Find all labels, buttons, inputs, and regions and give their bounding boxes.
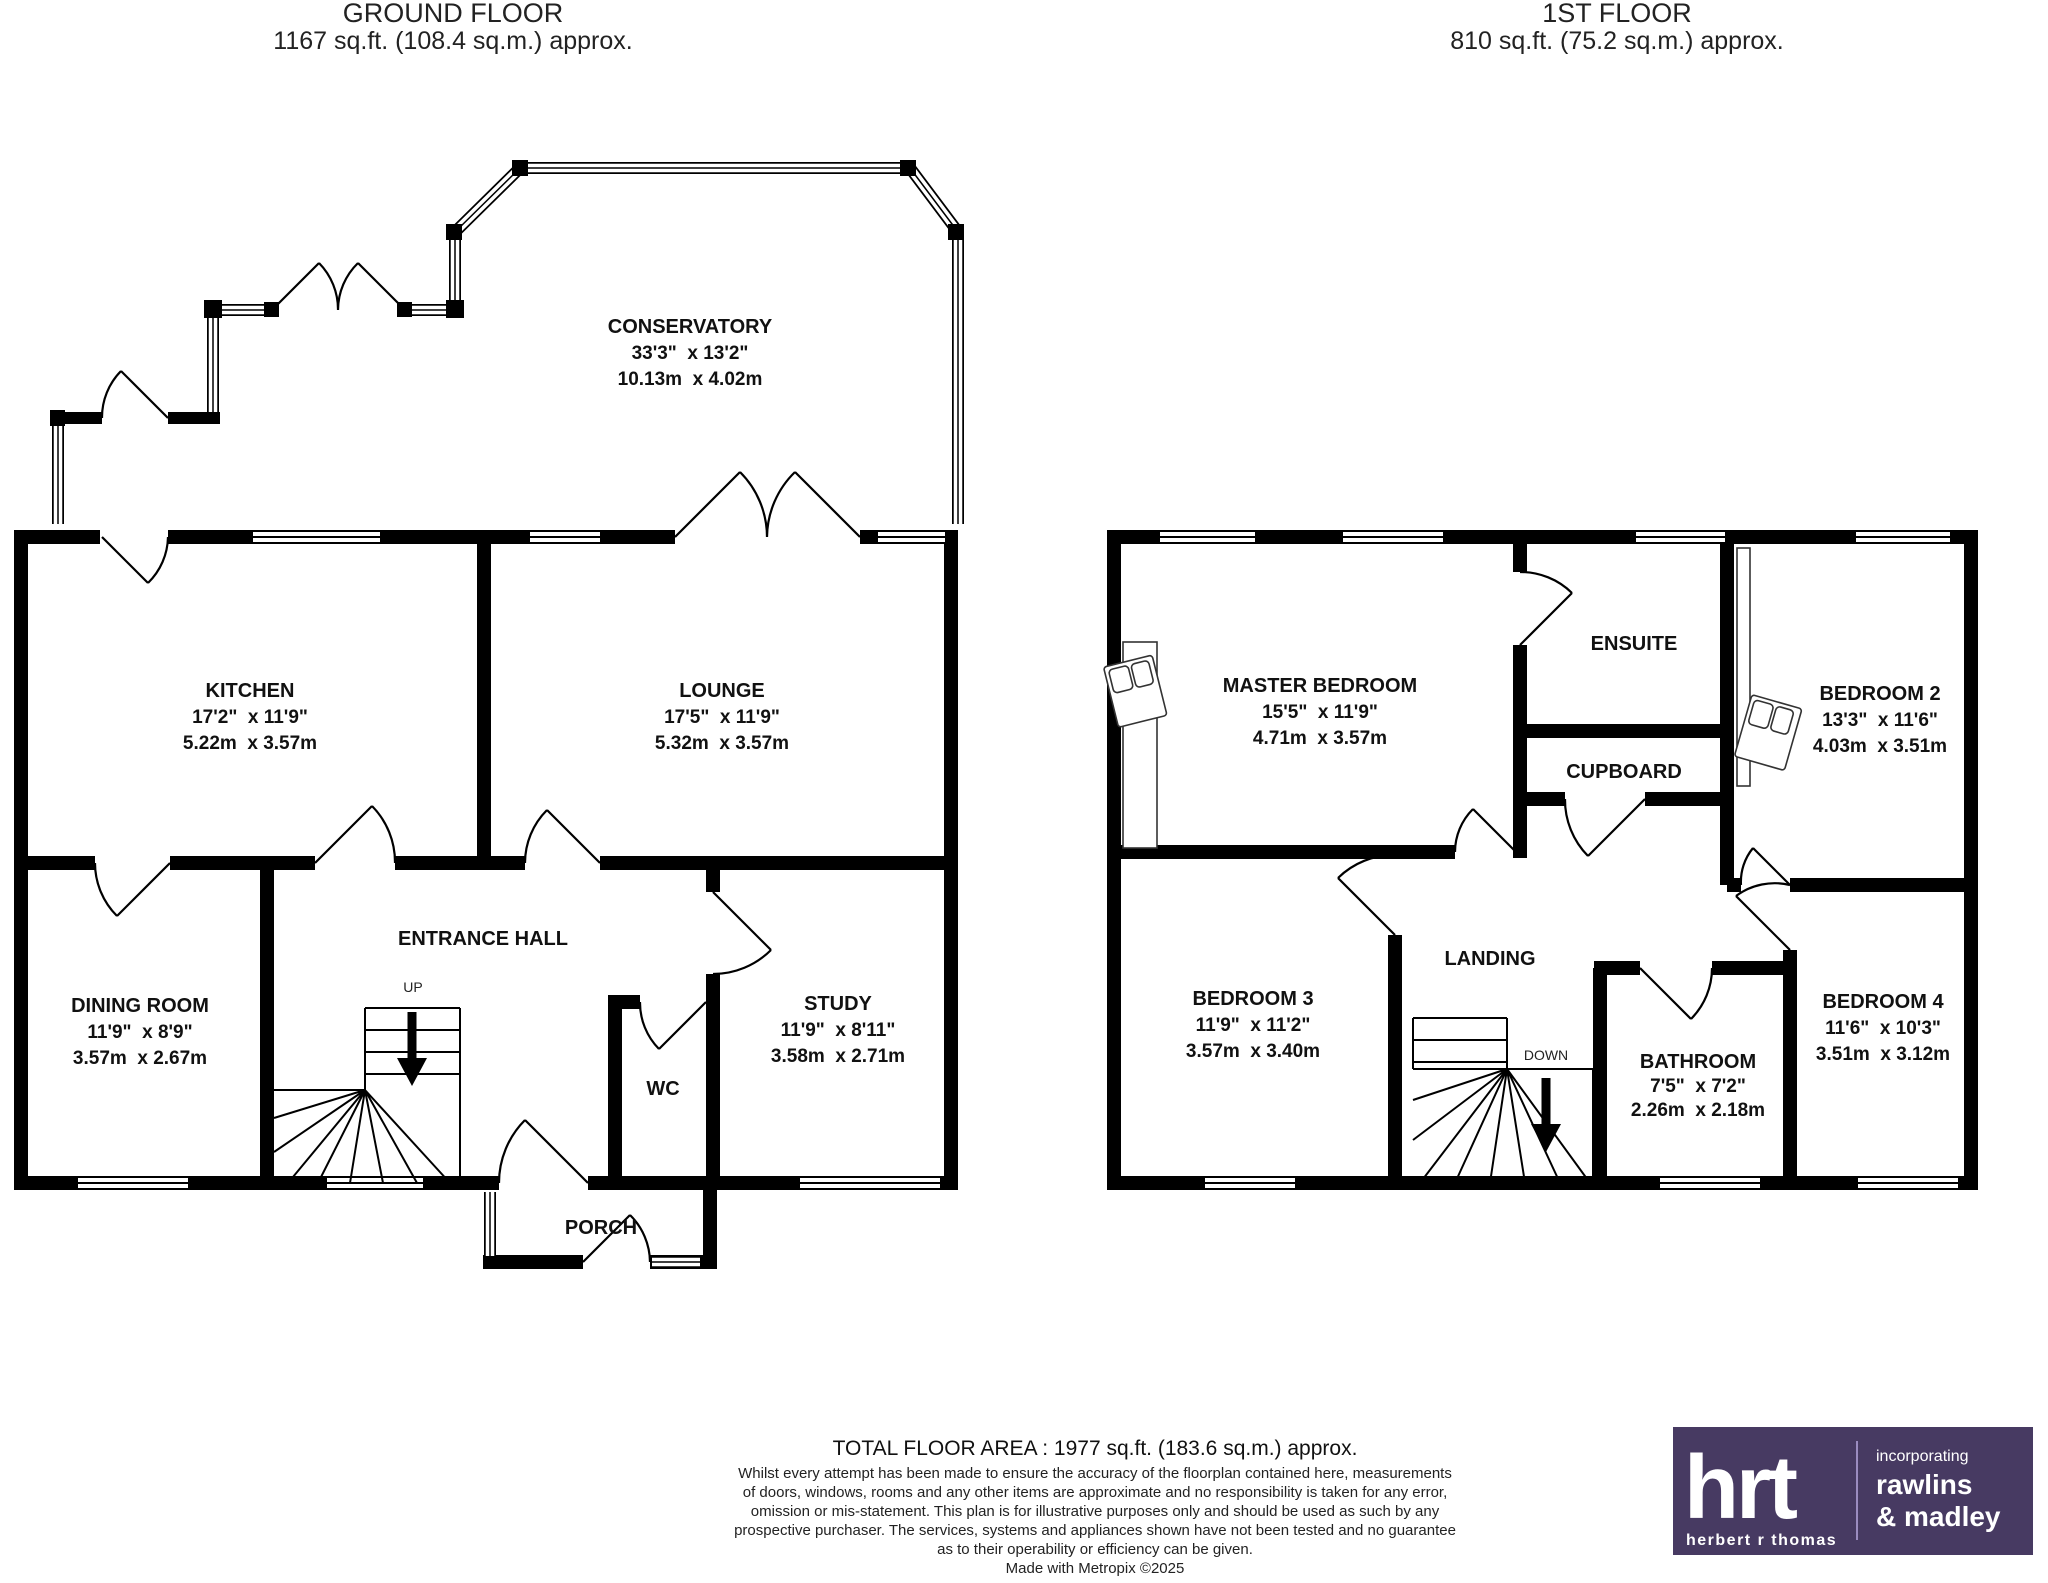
room-dims-metric: 10.13m x 4.02m [618, 369, 763, 390]
room-dims-imperial: 7'5" x 7'2" [1650, 1076, 1746, 1097]
room-label-conservatory: CONSERVATORY [608, 316, 773, 338]
room-dims-imperial: 15'5" x 11'9" [1262, 702, 1378, 723]
up-arrow-head [397, 1058, 427, 1086]
glazing-post [948, 224, 964, 240]
ground-windows [78, 537, 945, 1262]
first-floor-plan: DOWN MASTER BEDROOM 15'5" x 11'9" 4.71m … [1104, 530, 1978, 1190]
total-floor-area: TOTAL FLOOR AREA : 1977 sq.ft. (183.6 sq… [833, 1437, 1358, 1460]
room-dims-imperial: 13'3" x 11'6" [1822, 710, 1938, 731]
room-label-ensuite: ENSUITE [1591, 633, 1678, 655]
disclaimer-line: omission or mis-statement. This plan is … [751, 1503, 1440, 1520]
room-dims-imperial: 11'6" x 10'3" [1825, 1018, 1941, 1039]
ground-floor-area: 1167 sq.ft. (108.4 sq.m.) approx. [273, 27, 632, 55]
room-dims-imperial: 17'2" x 11'9" [192, 707, 308, 728]
ground-floor-plan: UP CONSERVATORY 33'3" x 13'2" 10.13m x 4… [14, 160, 964, 1262]
room-label-study: STUDY [804, 993, 872, 1015]
room-label-bedroom2: BEDROOM 2 [1819, 683, 1940, 705]
room-label-bedroom3: BEDROOM 3 [1192, 988, 1313, 1010]
floorplan-svg: GROUND FLOOR 1167 sq.ft. (108.4 sq.m.) a… [0, 0, 2048, 1583]
room-dims-metric: 3.58m x 2.71m [771, 1046, 905, 1067]
glazing-post [204, 300, 222, 318]
floorplan-page: GROUND FLOOR 1167 sq.ft. (108.4 sq.m.) a… [0, 0, 2048, 1583]
first-windows [1160, 537, 1958, 1183]
first-staircase: DOWN [1413, 1018, 1593, 1183]
logo-tagline: herbert r thomas [1686, 1532, 1837, 1549]
logo-brand-text: hrt [1684, 1438, 1797, 1538]
ground-floor-title: GROUND FLOOR [343, 0, 564, 28]
room-dims-imperial: 33'3" x 13'2" [632, 343, 749, 364]
room-dims-metric: 5.22m x 3.57m [183, 733, 317, 754]
room-label-bathroom: BATHROOM [1640, 1051, 1756, 1073]
room-dims-metric: 4.71m x 3.57m [1253, 728, 1387, 749]
disclaimer-line: as to their operability or efficiency ca… [937, 1541, 1253, 1558]
first-floor-area: 810 sq.ft. (75.2 sq.m.) approx. [1450, 27, 1784, 55]
room-dims-imperial: 11'9" x 8'9" [87, 1022, 192, 1043]
room-dims-metric: 5.32m x 3.57m [655, 733, 789, 754]
conservatory-glazing [50, 160, 964, 524]
logo-incorporating: incorporating [1876, 1448, 1969, 1465]
room-label-lounge: LOUNGE [679, 680, 765, 702]
room-dims-imperial: 17'5" x 11'9" [664, 707, 780, 728]
glazing-post [50, 410, 65, 426]
disclaimer-line: of doors, windows, rooms and any other i… [743, 1484, 1448, 1501]
room-dims-imperial: 11'9" x 11'2" [1196, 1015, 1311, 1036]
room-dims-metric: 3.57m x 2.67m [73, 1048, 207, 1069]
room-label-entrance-hall: ENTRANCE HALL [398, 928, 568, 950]
room-label-porch: PORCH [565, 1217, 637, 1239]
room-label-master-bedroom: MASTER BEDROOM [1223, 675, 1417, 697]
room-dims-metric: 3.57m x 3.40m [1186, 1041, 1320, 1062]
room-label-wc: WC [646, 1078, 679, 1100]
first-floor-header: 1ST FLOOR 810 sq.ft. (75.2 sq.m.) approx… [1450, 0, 1784, 55]
room-dims-metric: 3.51m x 3.12m [1816, 1044, 1950, 1065]
stairs-up-label: UP [403, 979, 422, 995]
disclaimer-line: Whilst every attempt has been made to en… [738, 1465, 1452, 1482]
room-label-cupboard: CUPBOARD [1566, 761, 1682, 783]
ground-walls [14, 530, 958, 1262]
disclaimer-line: prospective purchaser. The services, sys… [734, 1522, 1456, 1539]
room-label-landing: LANDING [1444, 948, 1535, 970]
room-label-kitchen: KITCHEN [206, 680, 295, 702]
room-dims-imperial: 11'9" x 8'11" [781, 1020, 896, 1041]
room-label-bedroom4: BEDROOM 4 [1822, 991, 1944, 1013]
glazing-post [512, 160, 528, 176]
room-label-dining: DINING ROOM [71, 995, 209, 1017]
ground-floor-header: GROUND FLOOR 1167 sq.ft. (108.4 sq.m.) a… [273, 0, 632, 55]
glazing-post [446, 224, 462, 240]
first-floor-title: 1ST FLOOR [1542, 0, 1692, 28]
glazing-post [900, 160, 916, 176]
room-dims-metric: 4.03m x 3.51m [1813, 736, 1947, 757]
room-dims-metric: 2.26m x 2.18m [1631, 1100, 1765, 1121]
stairs-down-label: DOWN [1524, 1047, 1568, 1063]
logo-partner-line2: & madley [1876, 1501, 2001, 1532]
ground-staircase: UP [274, 979, 460, 1183]
glazing-post [446, 300, 464, 318]
metropix-credit: Made with Metropix ©2025 [1006, 1560, 1185, 1577]
agency-logo: hrt herbert r thomas incorporating rawli… [1673, 1427, 2033, 1555]
footer: TOTAL FLOOR AREA : 1977 sq.ft. (183.6 sq… [734, 1437, 1456, 1577]
logo-partner-line1: rawlins [1876, 1469, 1972, 1500]
